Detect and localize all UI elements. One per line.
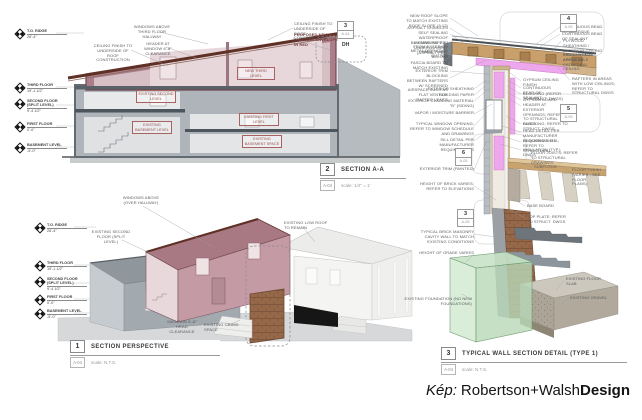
annotation-label: CEILING FINISH TO UNDERSIDE OF ROOF CONS… xyxy=(92,44,134,63)
annotation-label: WINDOWS ABOVE THIRD FLOOR HALLWAY xyxy=(128,25,176,39)
detail-callout-ref: 3 A-05 xyxy=(457,209,474,227)
titleblock-section-aa: 2 SECTION A-A A-04 scale: 1/4" = 1' xyxy=(320,163,406,191)
drawing-title: TYPICAL WALL SECTION DETAIL (TYPE 1) xyxy=(462,351,598,357)
annotation-label: TYPICAL WINDOW OPENING; REFER TO WINDOW … xyxy=(406,122,474,136)
level-datum-icon xyxy=(14,142,25,153)
annotation-label: WINDOWS ABOVE (OVER HALLWAY) xyxy=(118,196,164,206)
detail-number: 3 xyxy=(441,347,456,360)
room-tag: EXISTING BASEMENT SPACE xyxy=(242,135,282,148)
room-tag: NEW THIRD LEVEL xyxy=(237,67,275,80)
credit-prefix: Kép: xyxy=(426,382,457,399)
level-datum-icon xyxy=(14,28,25,39)
level-datum-icon xyxy=(14,82,25,93)
annotation-label: EXISTING FOUNDATION (NO NEW FOUNDATIONS) xyxy=(402,297,472,307)
level-marker: BASEMENT LEVEL-5'-0" xyxy=(16,143,67,154)
annotation-label: EXISTING SECOND FLOOR (SPLIT LEVEL) xyxy=(90,230,132,244)
level-datum-icon xyxy=(34,308,45,319)
annotation-label: PROPOSED NEW ADDITION ENVELOPE IN RED xyxy=(294,33,338,47)
level-elevation: 26'-4" xyxy=(27,35,67,40)
level-marker: BASEMENT LEVEL-5'-0" xyxy=(36,309,87,320)
level-marker: SECOND FLOOR (SPLIT LEVEL)9'-4 1/2" xyxy=(36,277,87,292)
sheet-ref: A-04 xyxy=(320,180,335,191)
architectural-sheet: T.O. RIDGE26'-4" THIRD FLOOR19'-1 1/2" S… xyxy=(0,0,642,420)
level-marker: T.O. RIDGE26'-4" xyxy=(16,29,67,40)
level-marker: SECOND FLOOR (SPLIT LEVEL)9'-4 1/2" xyxy=(16,99,67,114)
scale-note: scale: 1/4" = 1' xyxy=(341,183,370,188)
annotation-label: HEIGHT OF GRADE VARIES xyxy=(406,251,474,256)
level-datum-icon xyxy=(34,276,45,287)
scale-note: scale: N.T.S. xyxy=(462,367,487,372)
detail-callout-ref: 5 A-05 xyxy=(560,104,577,122)
level-marker: THIRD FLOOR19'-1 1/2" xyxy=(36,261,87,272)
annotation-label: EXISTING GRAVEL xyxy=(570,296,608,301)
titleblock-perspective: 1 SECTION PERSPECTIVE A-04 scale: N.T.S. xyxy=(70,340,220,368)
level-marker: THIRD FLOOR19'-1 1/2" xyxy=(16,83,67,94)
annotation-label: EXISTING FLOOR SLAB xyxy=(566,277,608,287)
annotation-label: HEIGHT OF BRICK VARIES; REFER TO ELEVATI… xyxy=(406,182,474,192)
annotation-label: HEADER AT WINDOW 6'-8" CLEARANCE xyxy=(142,42,174,56)
annotation-label: GUTTER xyxy=(406,54,448,59)
titleblock-wall-detail: 3 TYPICAL WALL SECTION DETAIL (TYPE 1) A… xyxy=(441,347,627,375)
level-marker: T.O. RIDGE26'-4" xyxy=(36,223,87,234)
annotation-label: EXISTING CRAWL SPACE xyxy=(204,323,246,333)
annotation-label: EXISTING LOW ROOF TO REMAIN xyxy=(284,221,330,231)
level-marker: FIRST FLOOR0'-0" xyxy=(16,122,67,133)
level-datum-icon xyxy=(34,222,45,233)
scale-note: scale: N.T.S. xyxy=(91,360,116,365)
detail-callout-ref: 3 A-04 xyxy=(337,21,354,39)
room-tag: EXISTING SECOND LEVEL xyxy=(136,90,176,103)
credit-name-bold: Design xyxy=(580,382,630,399)
annotation-label: SUBFLOOR xyxy=(534,165,564,170)
level-datum-icon xyxy=(14,121,25,132)
level-datum-icon xyxy=(14,98,25,109)
annotation-label: INSULATION IN AREAS W/ CATHEDRAL CEILING xyxy=(563,53,605,72)
annotation-label: RAFTERS IN AREAS WITH LOW CEILINGS; REFE… xyxy=(572,77,620,96)
detail-callout-ref: 4 A-05 xyxy=(560,14,577,32)
drawing-title: SECTION A-A xyxy=(341,167,384,173)
annotation-label: VAPOR / MOISTURE BARRIER xyxy=(406,111,474,116)
credit-name: Robertson+Walsh xyxy=(461,382,580,399)
sheet-ref: A-04 xyxy=(70,357,85,368)
level-datum-icon xyxy=(34,260,45,271)
annotation-label: TYPICAL BRICK MASONRY CAVITY WALL TO MAT… xyxy=(406,230,474,244)
annotation-label: EXTERIOR CLADDING MATERIAL "B" (SIDING) xyxy=(406,99,474,109)
image-credit: Kép:Robertson+WalshDesign xyxy=(426,382,630,399)
annotation-label: BASE BOARD xyxy=(527,204,563,209)
level-marker: FIRST FLOOR0'-0" xyxy=(36,295,87,306)
level-datum-icon xyxy=(34,294,45,305)
annotation-label: TOP PLATE; REFER TO STRUCT. DWGS xyxy=(527,215,571,225)
detail-callout-ref: 6 A-05 xyxy=(455,148,472,166)
annotation-label: EXTERIOR TRIM (PAINTED) xyxy=(406,167,474,172)
sheet-ref: A-04 xyxy=(441,364,456,375)
door-tag: DH xyxy=(342,42,349,48)
annotation-label: MAINTAIN 6'-8" HEAD CLEARANCE xyxy=(164,320,200,334)
detail-number: 2 xyxy=(320,163,335,176)
drawing-title: SECTION PERSPECTIVE xyxy=(91,344,169,350)
annotation-label: FLOOR FINISH (VARIES - SEE FLOOR PLANS) xyxy=(572,168,602,187)
room-tag: EXISTING FIRST LEVEL xyxy=(239,113,279,126)
detail-number: 1 xyxy=(70,340,85,353)
room-tag: EXISTING BASEMENT LEVEL xyxy=(132,121,172,134)
